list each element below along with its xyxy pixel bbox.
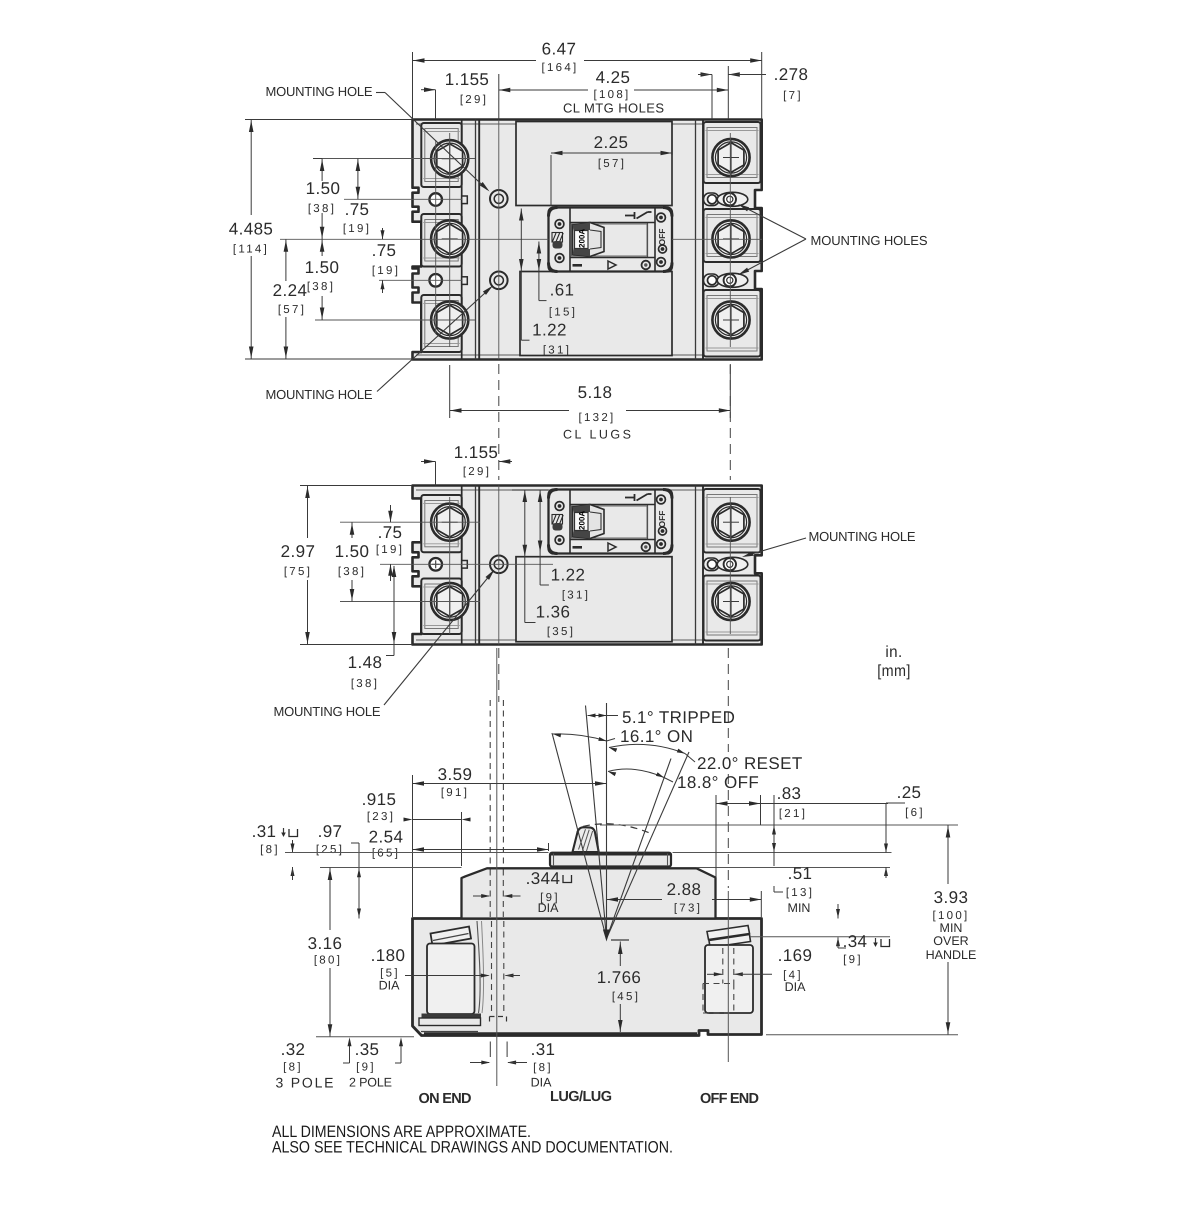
svg-text:.169: .169 xyxy=(778,946,813,965)
svg-text:18.8° OFF: 18.8° OFF xyxy=(677,773,759,792)
svg-text:4.485: 4.485 xyxy=(229,220,274,239)
svg-text:[25]: [25] xyxy=(316,844,344,856)
svg-text:[35]: [35] xyxy=(547,626,575,638)
svg-text:1.155: 1.155 xyxy=(445,70,490,89)
svg-text:2.54: 2.54 xyxy=(369,828,404,847)
svg-text:[73]: [73] xyxy=(674,903,702,915)
svg-text:[38]: [38] xyxy=(351,678,379,690)
svg-text:MOUNTING HOLE: MOUNTING HOLE xyxy=(266,84,373,99)
svg-text:[15]: [15] xyxy=(549,307,577,319)
svg-text:2 POLE: 2 POLE xyxy=(349,1076,392,1090)
svg-text:[21]: [21] xyxy=(779,808,807,820)
svg-text:[31]: [31] xyxy=(562,590,590,602)
svg-text:[19]: [19] xyxy=(343,223,371,235)
svg-text:CL MTG HOLES: CL MTG HOLES xyxy=(563,101,664,116)
svg-text:.51: .51 xyxy=(788,864,813,883)
svg-text:3.59: 3.59 xyxy=(438,765,473,784)
svg-text:[132]: [132] xyxy=(578,412,615,424)
svg-text:DIA: DIA xyxy=(531,1076,553,1090)
svg-text:4.25: 4.25 xyxy=(596,68,631,87)
svg-text:[45]: [45] xyxy=(612,991,640,1003)
svg-text:.35: .35 xyxy=(355,1040,380,1059)
svg-text:MIN: MIN xyxy=(940,921,963,935)
svg-text:1.22: 1.22 xyxy=(532,321,567,340)
svg-text:[65]: [65] xyxy=(372,848,400,860)
svg-text:MIN: MIN xyxy=(788,901,811,915)
svg-text:1.766: 1.766 xyxy=(597,968,642,987)
svg-text:[38]: [38] xyxy=(338,566,366,578)
svg-text:.32: .32 xyxy=(281,1040,306,1059)
svg-text:.75: .75 xyxy=(372,241,397,260)
svg-text:HANDLE: HANDLE xyxy=(926,948,977,962)
svg-text:.61: .61 xyxy=(550,281,575,300)
svg-text:[8]: [8] xyxy=(283,1062,303,1074)
svg-text:1.48: 1.48 xyxy=(348,653,383,672)
svg-text:2.24: 2.24 xyxy=(273,281,308,300)
svg-text:[91]: [91] xyxy=(441,787,469,799)
svg-text:5.1° TRIPPED: 5.1° TRIPPED xyxy=(622,708,735,727)
svg-text:[mm]: [mm] xyxy=(877,663,910,680)
svg-text:1.50: 1.50 xyxy=(335,542,370,561)
svg-text:3.93: 3.93 xyxy=(934,888,969,907)
svg-text:MOUNTING HOLE: MOUNTING HOLE xyxy=(809,529,916,544)
svg-text:.25: .25 xyxy=(897,783,922,802)
svg-text:.83: .83 xyxy=(777,784,802,803)
svg-text:DIA: DIA xyxy=(785,980,807,994)
svg-text:[31]: [31] xyxy=(543,345,571,357)
svg-text:OFF END: OFF END xyxy=(700,1091,759,1107)
svg-text:[57]: [57] xyxy=(598,158,626,170)
svg-text:[57]: [57] xyxy=(278,304,306,316)
svg-text:[19]: [19] xyxy=(376,544,404,556)
svg-text:.75: .75 xyxy=(378,523,403,542)
svg-text:1.50: 1.50 xyxy=(306,179,341,198)
svg-text:2.88: 2.88 xyxy=(667,880,702,899)
svg-text:LUG/LUG: LUG/LUG xyxy=(550,1089,612,1105)
svg-text:1.155: 1.155 xyxy=(454,443,499,462)
svg-text:.97: .97 xyxy=(318,822,343,841)
svg-text:3 POLE: 3 POLE xyxy=(276,1075,334,1091)
svg-text:[80]: [80] xyxy=(314,955,342,967)
svg-text:1.50: 1.50 xyxy=(305,258,340,277)
svg-text:.75: .75 xyxy=(345,200,370,219)
svg-text:[108]: [108] xyxy=(593,89,630,101)
svg-text:[8]: [8] xyxy=(533,1062,553,1074)
svg-text:[114]: [114] xyxy=(233,244,269,256)
svg-text:.180: .180 xyxy=(371,946,406,965)
svg-text:[29]: [29] xyxy=(460,94,488,106)
svg-text:1.36: 1.36 xyxy=(536,603,571,622)
svg-text:[38]: [38] xyxy=(307,281,335,293)
svg-text:DIA: DIA xyxy=(379,979,401,993)
svg-text:[8]: [8] xyxy=(260,844,280,856)
svg-text:ALSO SEE TECHNICAL DRAWINGS AN: ALSO SEE TECHNICAL DRAWINGS AND DOCUMENT… xyxy=(272,1139,673,1157)
svg-text:16.1° ON: 16.1° ON xyxy=(620,727,693,746)
svg-text:[164]: [164] xyxy=(541,62,578,74)
svg-text:MOUNTING HOLE: MOUNTING HOLE xyxy=(266,387,373,402)
svg-text:[29]: [29] xyxy=(463,466,491,478)
svg-text:5.18: 5.18 xyxy=(578,383,613,402)
svg-text:ON END: ON END xyxy=(419,1091,472,1107)
svg-text:DIA: DIA xyxy=(538,901,560,915)
svg-text:2.97: 2.97 xyxy=(281,542,316,561)
svg-text:[13]: [13] xyxy=(786,887,814,899)
svg-text:[75]: [75] xyxy=(284,566,312,578)
svg-text:200A: 200A xyxy=(578,229,587,248)
svg-text:MOUNTING HOLE: MOUNTING HOLE xyxy=(274,704,381,719)
svg-text:1.22: 1.22 xyxy=(551,566,586,585)
svg-text:.344: .344 xyxy=(526,869,561,888)
svg-text:200A: 200A xyxy=(578,511,587,530)
svg-text:OFF: OFF xyxy=(657,229,667,246)
svg-text:.31: .31 xyxy=(531,1040,556,1059)
svg-text:OFF: OFF xyxy=(657,511,667,528)
svg-text:[7]: [7] xyxy=(783,90,803,102)
svg-text:[9]: [9] xyxy=(843,954,863,966)
svg-text:MOUNTING HOLES: MOUNTING HOLES xyxy=(811,233,928,248)
svg-text:OVER: OVER xyxy=(933,934,968,948)
svg-text:[9]: [9] xyxy=(356,1062,376,1074)
svg-text:.34: .34 xyxy=(843,932,868,951)
svg-text:2.25: 2.25 xyxy=(594,133,629,152)
svg-text:.278: .278 xyxy=(774,65,809,84)
svg-text:.31: .31 xyxy=(252,822,277,841)
svg-text:[38]: [38] xyxy=(308,203,336,215)
svg-text:6.47: 6.47 xyxy=(542,40,577,59)
svg-text:in.: in. xyxy=(885,644,902,661)
svg-text:22.0° RESET: 22.0° RESET xyxy=(697,754,803,773)
svg-text:[19]: [19] xyxy=(372,265,400,277)
svg-text:3.16: 3.16 xyxy=(308,934,343,953)
svg-text:.915: .915 xyxy=(362,790,397,809)
svg-text:[23]: [23] xyxy=(367,811,395,823)
svg-text:[6]: [6] xyxy=(905,807,925,819)
